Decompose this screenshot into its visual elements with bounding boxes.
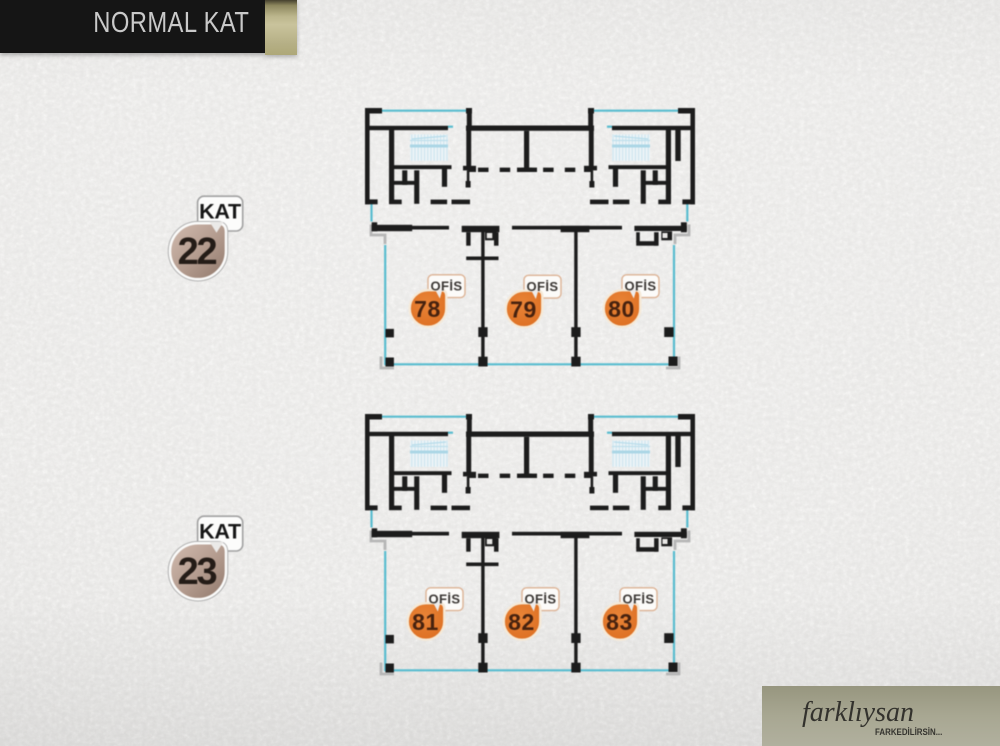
svg-text:OFİS: OFİS — [625, 279, 657, 294]
svg-text:OFİS: OFİS — [431, 279, 463, 294]
svg-text:KAT: KAT — [199, 199, 241, 223]
svg-text:OFİS: OFİS — [623, 591, 655, 606]
svg-text:80: 80 — [608, 296, 635, 322]
svg-text:22: 22 — [178, 231, 217, 273]
svg-text:79: 79 — [510, 297, 537, 323]
svg-text:KAT: KAT — [199, 519, 241, 543]
svg-text:23: 23 — [178, 551, 217, 593]
svg-text:83: 83 — [606, 609, 633, 635]
svg-text:OFİS: OFİS — [525, 591, 557, 606]
svg-text:78: 78 — [414, 296, 441, 322]
svg-text:OFİS: OFİS — [429, 591, 461, 606]
svg-text:81: 81 — [412, 609, 439, 635]
svg-text:OFİS: OFİS — [527, 279, 559, 294]
svg-text:82: 82 — [508, 609, 535, 635]
